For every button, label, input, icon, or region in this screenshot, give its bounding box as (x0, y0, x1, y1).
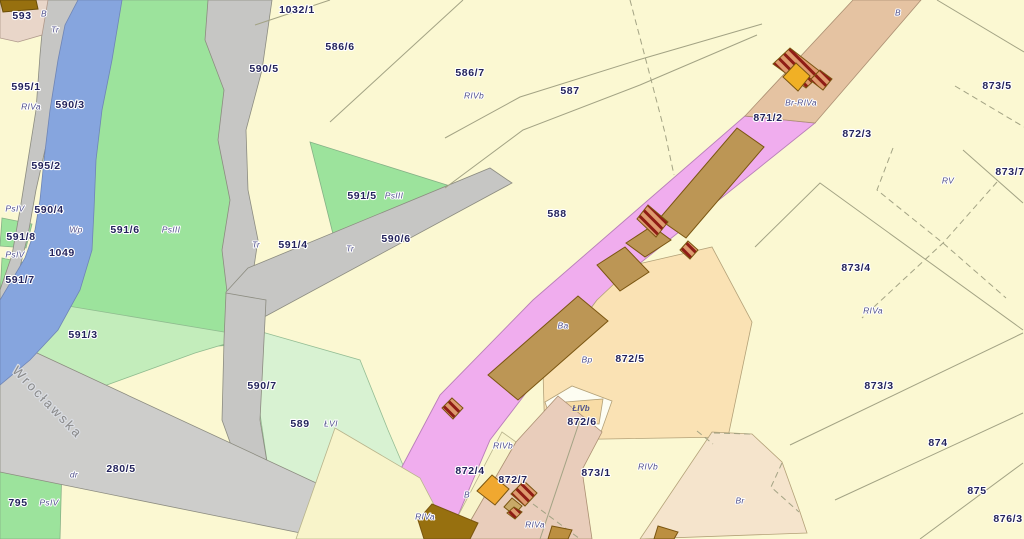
parcel-number-label: 1032/1 (279, 4, 315, 16)
landuse-code-label: PsIV (39, 497, 59, 507)
parcel-number-label: 591/5 (347, 190, 376, 202)
parcel-number-label: 873/4 (841, 262, 870, 274)
parcel-number-label: 280/5 (106, 463, 135, 475)
landuse-code-label: B (41, 8, 47, 18)
parcel-number-label: 587 (560, 85, 579, 97)
landuse-code-label: PsIII (162, 224, 181, 234)
landuse-code-label: ŁIVb (571, 404, 589, 413)
map-viewport[interactable]: 593BTr1032/1586/6590/5586/7587RIVb595/15… (0, 0, 1024, 539)
landuse-code-label: Tr (51, 24, 60, 34)
landuse-code-label: dr (70, 469, 79, 479)
landuse-code-label: Tr (346, 243, 355, 253)
landuse-code-label: B (464, 489, 470, 499)
landuse-code-label: PsIV (5, 203, 25, 213)
parcel-number-label: 590/3 (55, 99, 84, 111)
parcel-number-label: 873/5 (982, 80, 1011, 92)
parcel-number-label: 873/1 (581, 467, 610, 479)
parcel-number-label: 873/7 (995, 166, 1024, 178)
landuse-code-label: PsIII (385, 190, 404, 200)
parcel-number-label: 795 (8, 497, 27, 509)
landuse-code-label: PsIV (5, 249, 25, 259)
landuse-code-label: Wp (69, 224, 82, 234)
parcel-number-label: 591/8 (6, 231, 35, 243)
parcel-number-label: 586/6 (325, 41, 354, 53)
parcel-number-label: 589 (290, 418, 309, 430)
map-canvas[interactable]: 593BTr1032/1586/6590/5586/7587RIVb595/15… (0, 0, 1024, 539)
landuse-code-label: RV (942, 175, 955, 185)
parcel-number-label: 595/1 (11, 81, 40, 93)
parcel-number-label: 591/3 (68, 329, 97, 341)
parcel-number-label: 875 (967, 485, 986, 497)
parcel-number-label: 586/7 (455, 67, 484, 79)
parcel-number-label: 591/4 (278, 239, 307, 251)
parcel-number-label: 872/7 (498, 474, 527, 486)
parcel-number-label: 593 (12, 10, 31, 22)
parcel-number-label: 876/3 (993, 513, 1022, 525)
parcel-number-label: 591/6 (110, 224, 139, 236)
parcel-number-label: 588 (547, 208, 566, 220)
parcel-number-label: 1049 (49, 247, 75, 259)
landuse-code-label: RIVa (863, 305, 883, 315)
parcel-number-label: 873/3 (864, 380, 893, 392)
landuse-code-label: RIVa (525, 519, 545, 529)
landuse-code-label: Br-RIVa (785, 97, 817, 107)
parcel-number-label: 591/7 (5, 274, 34, 286)
parcel-number-label: 874 (928, 437, 947, 449)
parcel-number-label: 872/6 (567, 416, 596, 428)
landuse-code-label: Ba (558, 320, 569, 330)
landuse-code-label: Br (735, 495, 745, 505)
landuse-code-label: RIVb (638, 461, 658, 471)
landuse-code-label: RIVa (21, 101, 41, 111)
landuse-code-label: RIVb (464, 90, 484, 100)
parcel-number-label: 590/6 (381, 233, 410, 245)
parcel-number-label: 872/3 (842, 128, 871, 140)
landuse-code-label: RIVa (415, 511, 435, 521)
landuse-code-label: B (895, 7, 901, 17)
parcel-number-label: 871/2 (753, 112, 782, 124)
parcel-number-label: 595/2 (31, 160, 60, 172)
parcel-number-label: 590/5 (249, 63, 278, 75)
landuse-code-label: Bp (582, 354, 593, 364)
parcel-number-label: 872/5 (615, 353, 644, 365)
landuse-code-label: RIVb (493, 440, 513, 450)
landuse-code-label: Tr (252, 239, 261, 249)
parcel-number-label: 590/7 (247, 380, 276, 392)
parcel-number-label: 872/4 (455, 465, 484, 477)
parcel-number-label: 590/4 (34, 204, 63, 216)
landuse-code-label: ŁVI (324, 418, 338, 428)
